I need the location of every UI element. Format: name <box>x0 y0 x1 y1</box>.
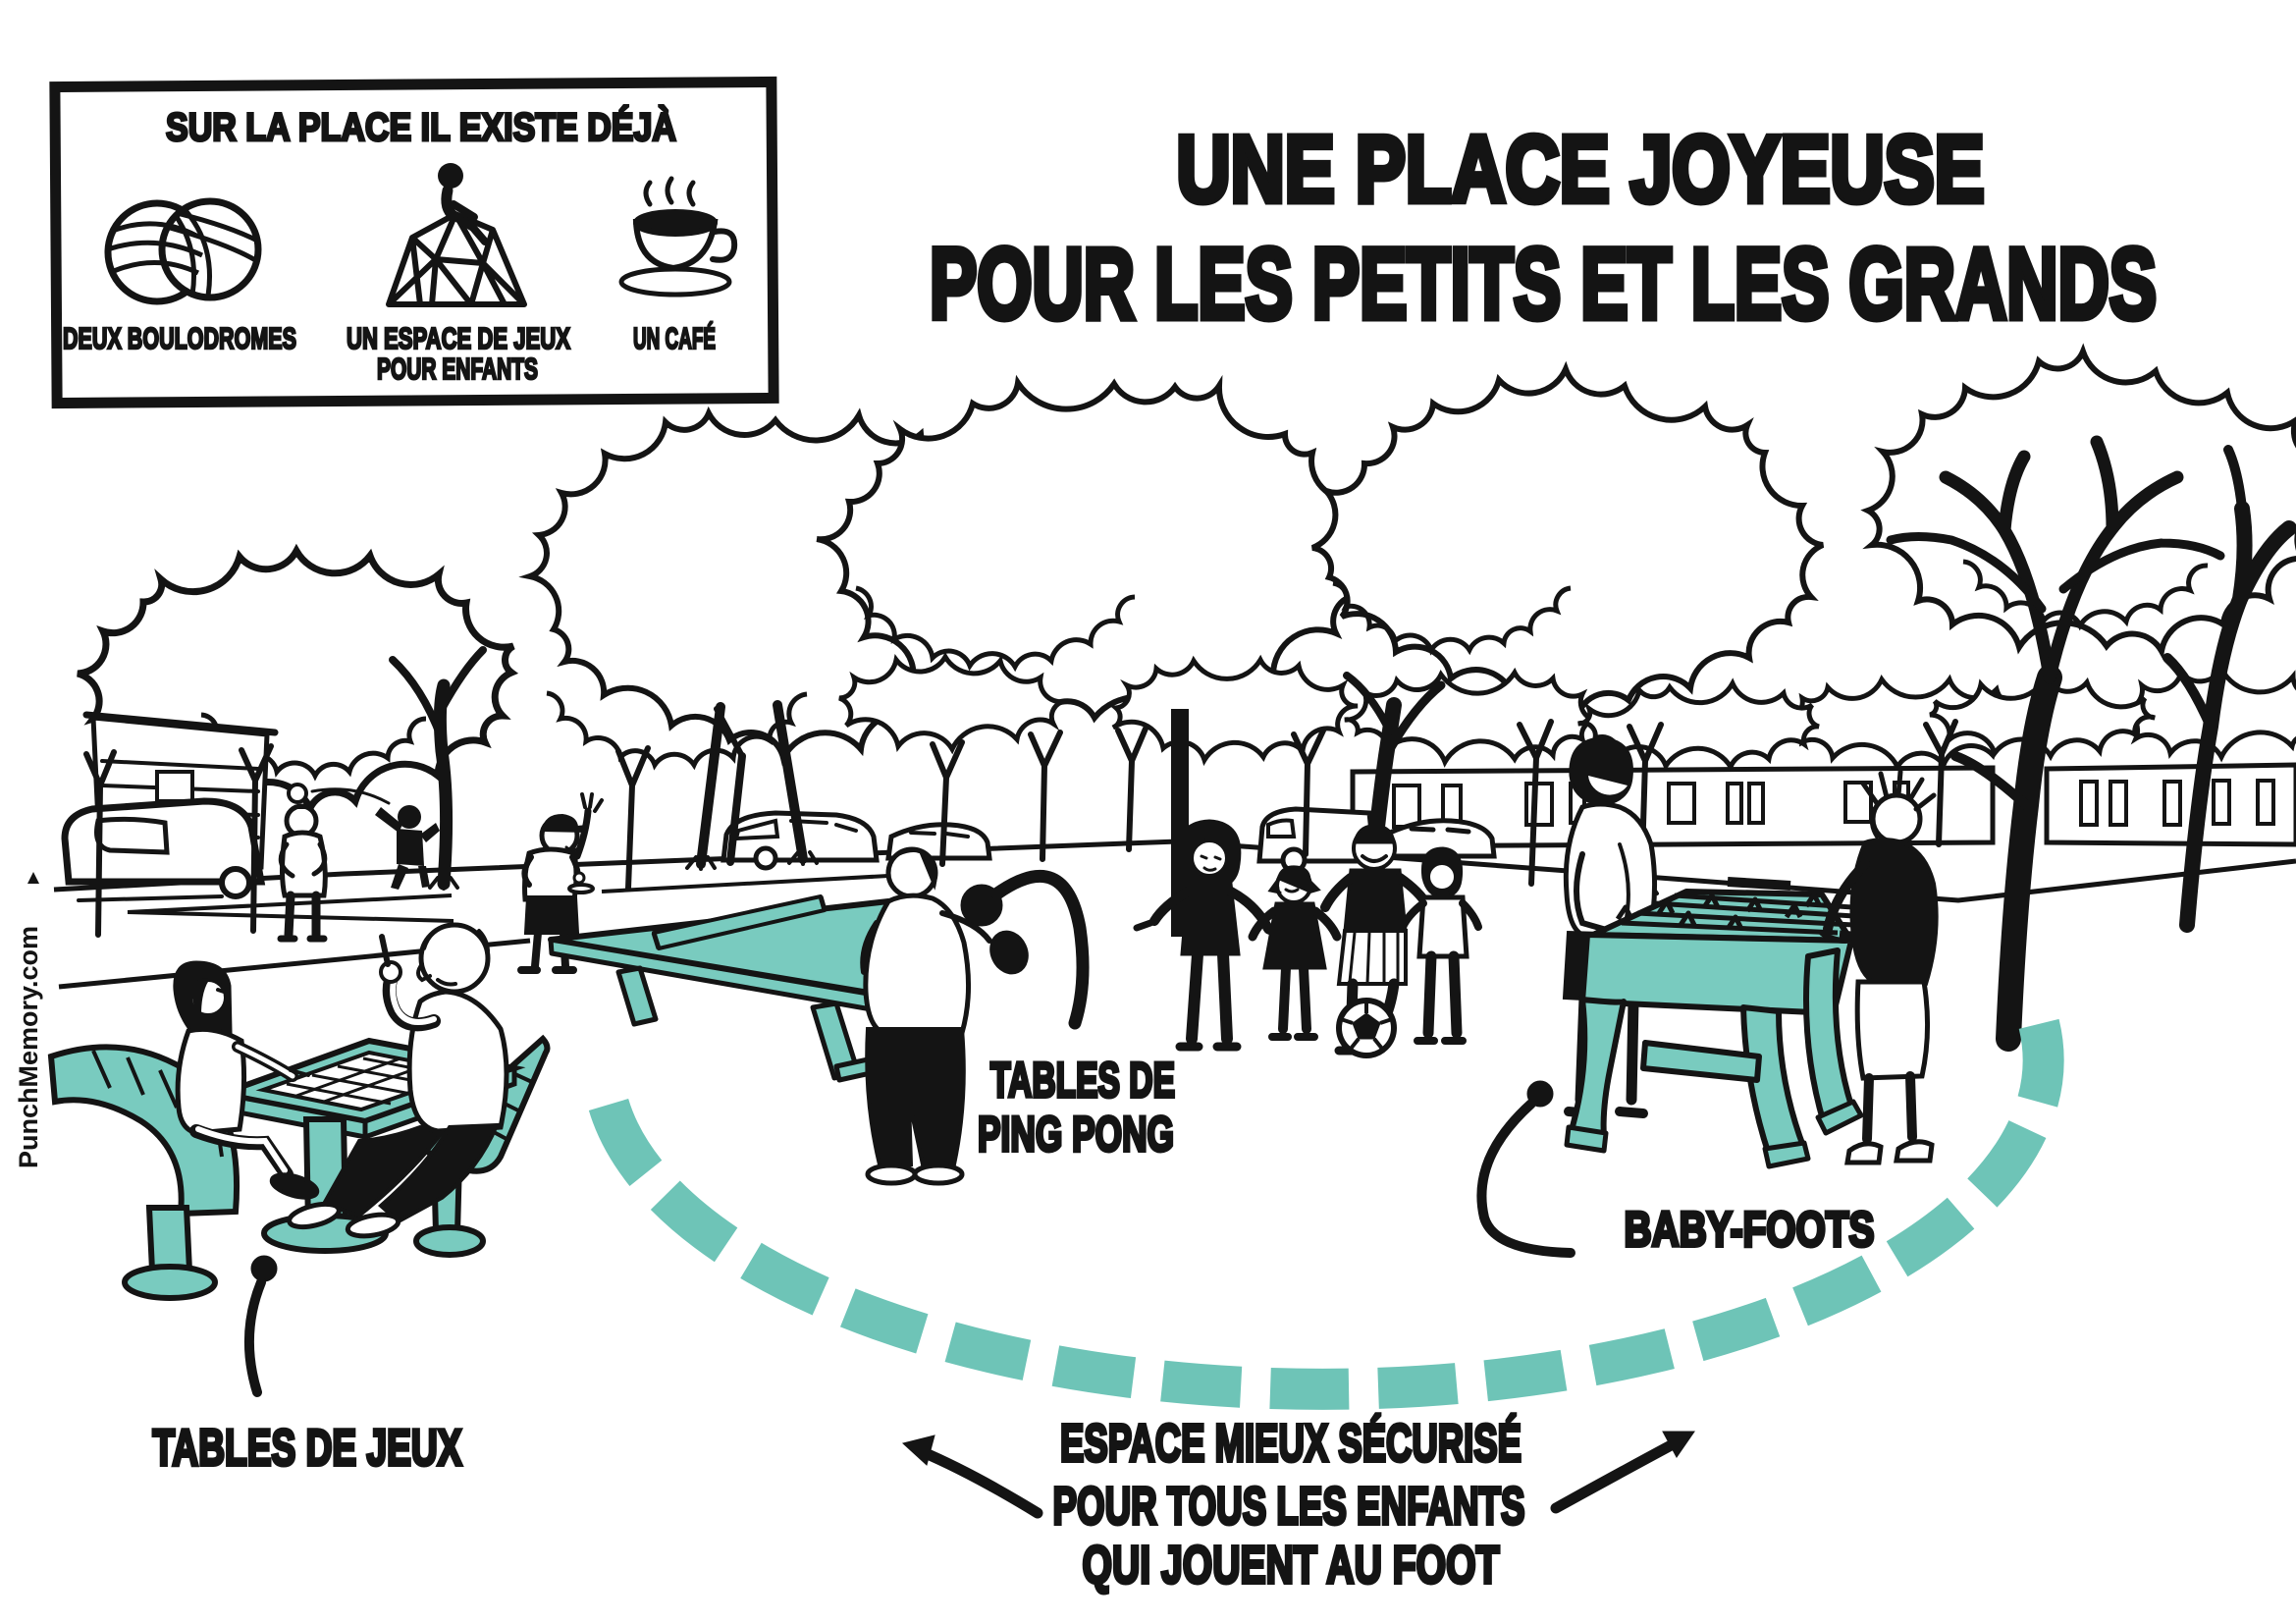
svg-text:POUR LES PETITS ET LES GRANDS: POUR LES PETITS ET LES GRANDS <box>930 228 2157 340</box>
svg-text:PING PONG: PING PONG <box>978 1107 1174 1162</box>
svg-text:SUR LA PLACE IL EXISTE DÉJÀ: SUR LA PLACE IL EXISTE DÉJÀ <box>166 105 676 149</box>
svg-text:POUR TOUS LES ENFANTS: POUR TOUS LES ENFANTS <box>1053 1477 1525 1536</box>
svg-text:UN CAFÉ: UN CAFÉ <box>633 321 716 355</box>
svg-text:DEUX BOULODROMES: DEUX BOULODROMES <box>63 321 296 355</box>
svg-text:POUR ENFANTS: POUR ENFANTS <box>377 352 538 386</box>
svg-text:QUI JOUENT AU FOOT: QUI JOUENT AU FOOT <box>1083 1536 1500 1595</box>
svg-text:UN ESPACE DE JEUX: UN ESPACE DE JEUX <box>347 321 570 355</box>
svg-text:ESPACE MIEUX SÉCURISÉ: ESPACE MIEUX SÉCURISÉ <box>1060 1414 1522 1473</box>
svg-text:TABLES DE JEUX: TABLES DE JEUX <box>153 1420 462 1477</box>
svg-text:TABLES DE: TABLES DE <box>990 1053 1175 1108</box>
svg-text:UNE PLACE JOYEUSE: UNE PLACE JOYEUSE <box>1177 117 1985 222</box>
svg-text:BABY-FOOTS: BABY-FOOTS <box>1625 1202 1875 1257</box>
svg-text:PunchMemory.com: PunchMemory.com <box>14 926 43 1168</box>
